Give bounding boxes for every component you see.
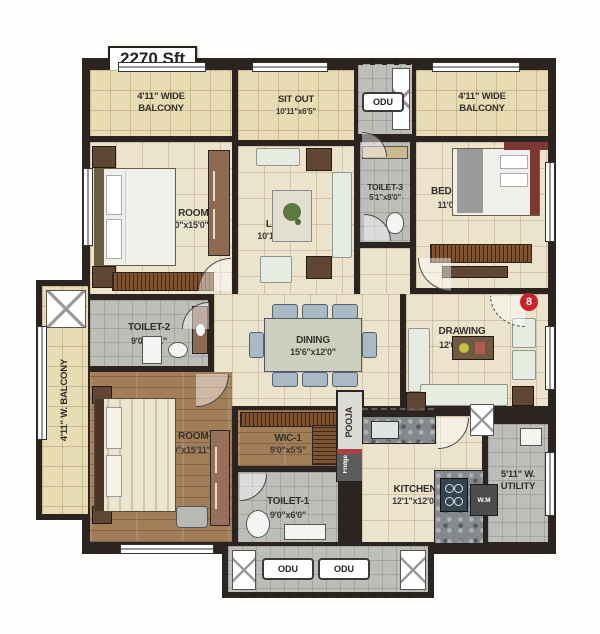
room-sit-out: SIT OUT 10'11"x6'5" xyxy=(238,70,354,140)
tv-console xyxy=(256,148,300,166)
sofa-drawing-bottom xyxy=(420,384,508,406)
fridge: Fridge xyxy=(336,452,364,482)
balcony-left-label: 4'11" W. BALCONY xyxy=(59,359,71,441)
kitchen-counter-top xyxy=(362,416,436,444)
dining-chair xyxy=(332,304,358,319)
vanity-toilet-1 xyxy=(284,524,326,540)
dining-chair xyxy=(272,372,298,387)
unit-number-badge: 8 xyxy=(520,293,538,311)
odu-bottom-unit-2: ODU xyxy=(318,558,370,580)
odu-top-unit: ODU xyxy=(362,92,404,112)
window xyxy=(37,326,47,440)
window xyxy=(545,452,555,516)
utility-sink xyxy=(520,428,542,446)
hatch-strip-bottom xyxy=(240,592,416,598)
fridge-label: Fridge xyxy=(343,455,349,473)
shaft-void-left xyxy=(46,290,86,328)
ottoman xyxy=(306,148,332,171)
balcony-top-left-label1: 4'11" WIDE xyxy=(137,91,185,103)
toilet-3-dims: 5'1"x8'0" xyxy=(369,193,401,202)
window xyxy=(545,326,555,390)
balcony-top-left-label2: BALCONY xyxy=(138,103,184,115)
dining-label: DINING xyxy=(296,334,330,347)
balcony-top-right-label1: 4'11" WIDE xyxy=(458,91,506,103)
hatch-strip-top xyxy=(358,59,412,65)
dining-chair xyxy=(302,304,328,319)
toilet-1-label: TOILET-1 xyxy=(267,495,309,508)
room-balcony-top-right: 4'11" WIDE BALCONY xyxy=(416,70,548,136)
toilet-3-label: TOILET-3 xyxy=(367,182,403,193)
wardrobe xyxy=(210,430,230,526)
center-table xyxy=(452,336,494,360)
dining-table: DINING 15'6"x12'0" xyxy=(264,318,362,372)
floor-plan: 2270 Sft 4'11" WIDE BALCONY SIT OUT 10'1… xyxy=(0,0,600,634)
passage xyxy=(360,248,410,294)
window xyxy=(118,62,206,72)
sofa-living xyxy=(332,172,352,258)
dining-chair xyxy=(362,332,377,358)
sit-out-dims: 10'11"x6'5" xyxy=(276,107,316,116)
room-pooja: POOJA xyxy=(336,390,364,454)
dining-dims: 15'6"x12'0" xyxy=(290,347,336,357)
window xyxy=(83,168,93,246)
pooja-label: POOJA xyxy=(344,407,356,438)
toilet-1-dims: 9'0"x6'0" xyxy=(270,510,306,520)
odu-bottom-unit-1: ODU xyxy=(262,558,314,580)
washing-machine: W.M xyxy=(470,484,498,516)
shaft-void-bottom-left xyxy=(232,550,256,590)
bed-3 xyxy=(452,148,540,216)
ottoman xyxy=(306,256,332,279)
sit-out-label: SIT OUT xyxy=(278,94,314,106)
headboard-shelf xyxy=(504,142,548,150)
stove xyxy=(440,478,468,512)
shaft-void-bottom-right xyxy=(400,550,426,590)
room-balcony-top-left: 4'11" WIDE BALCONY xyxy=(90,70,232,136)
wardrobe xyxy=(208,150,230,256)
dashed-line xyxy=(362,408,434,410)
dining-chair xyxy=(302,372,328,387)
kitchen-dims: 12'1"x12'0" xyxy=(392,496,438,506)
wic-wardrobe-right xyxy=(312,425,338,465)
bench xyxy=(442,266,508,278)
sofa-drawing-left xyxy=(408,328,430,392)
dining-chair xyxy=(272,304,298,319)
toilet-2-label: TOILET-2 xyxy=(128,321,170,334)
kitchen-label: KITCHEN xyxy=(393,483,436,496)
wc-toilet-2 xyxy=(142,336,162,364)
nightstand xyxy=(92,146,116,168)
shaft-void-utility xyxy=(470,404,494,436)
balcony-top-right-label2: BALCONY xyxy=(459,103,505,115)
side-table xyxy=(260,256,292,283)
utility-label1: 5'11" W. xyxy=(501,469,535,481)
coffee-table xyxy=(272,190,312,242)
wic-1-label: WIC-1 xyxy=(274,432,301,445)
ottoman xyxy=(176,506,208,528)
bed-2 xyxy=(94,168,176,266)
utility-label2: UTILITY xyxy=(501,481,536,493)
dining-chair xyxy=(332,372,358,387)
basin-toilet-2 xyxy=(168,342,188,358)
wic-1-dims: 9'0"x5'5" xyxy=(270,445,306,455)
window xyxy=(432,62,520,72)
armchair xyxy=(512,350,536,380)
dining-chair xyxy=(249,332,264,358)
window xyxy=(120,544,214,554)
corner-table xyxy=(512,386,534,406)
window xyxy=(545,162,555,242)
bed-1 xyxy=(94,398,176,512)
window xyxy=(252,62,328,72)
wc-toilet-1 xyxy=(246,510,270,538)
